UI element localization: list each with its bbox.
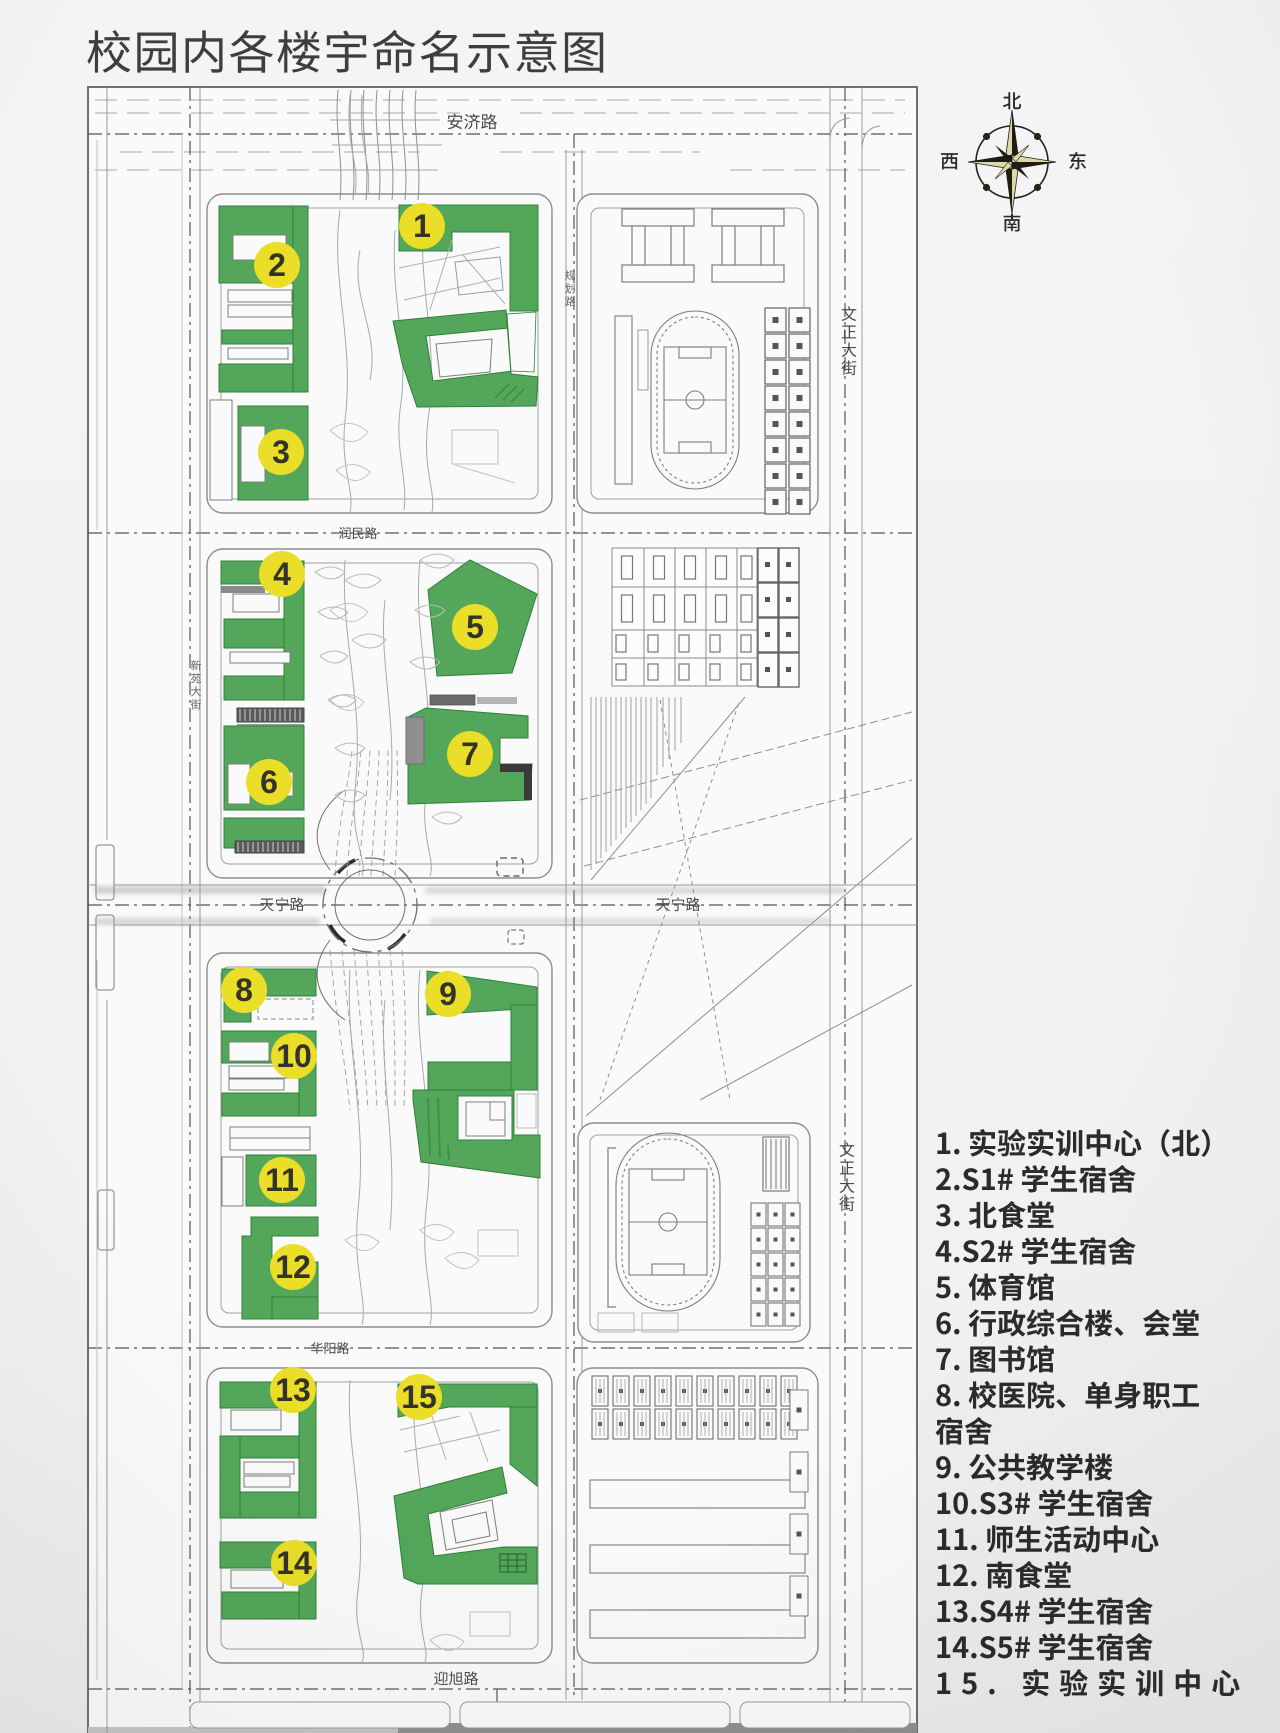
svg-text:1: 1 <box>413 208 431 244</box>
svg-text:14: 14 <box>276 1545 312 1581</box>
svg-text:7: 7 <box>461 736 479 772</box>
svg-text:8: 8 <box>235 972 253 1008</box>
svg-text:6: 6 <box>260 764 278 800</box>
svg-text:15: 15 <box>401 1379 437 1415</box>
svg-text:5: 5 <box>466 609 484 645</box>
svg-text:9: 9 <box>439 976 457 1012</box>
svg-text:3: 3 <box>272 434 290 470</box>
svg-text:13: 13 <box>275 1372 311 1408</box>
svg-text:4: 4 <box>273 556 291 592</box>
svg-text:12: 12 <box>275 1249 311 1285</box>
svg-text:11: 11 <box>265 1162 299 1198</box>
svg-text:10: 10 <box>276 1038 312 1074</box>
svg-text:2: 2 <box>268 247 286 283</box>
